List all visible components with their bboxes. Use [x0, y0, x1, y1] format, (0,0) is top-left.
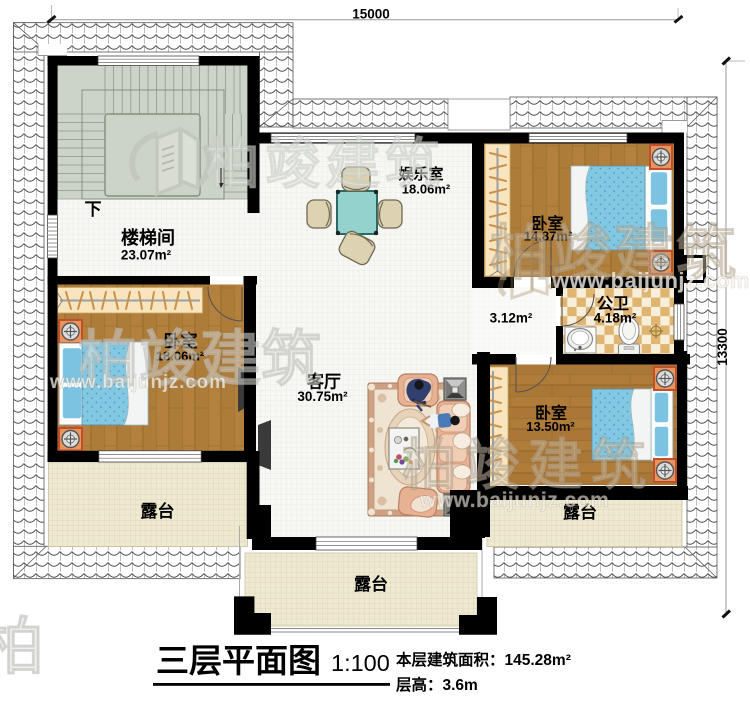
svg-text:www.baijunjz.com: www.baijunjz.com [551, 268, 750, 293]
svg-text:柏竣建筑: 柏竣建筑 [402, 434, 654, 496]
svg-text:三层平面图: 三层平面图 [156, 642, 321, 679]
svg-text:www.baijunjz.com: www.baijunjz.com [49, 372, 227, 393]
svg-text:23.07m²: 23.07m² [121, 248, 172, 263]
svg-text:www.baijunjz.com: www.baijunjz.com [419, 489, 609, 512]
svg-text:柏: 柏 [0, 613, 44, 682]
svg-text:露台: 露台 [354, 574, 388, 594]
svg-text:15000: 15000 [352, 7, 390, 22]
svg-text:柏竣建筑: 柏竣建筑 [205, 133, 445, 195]
svg-text:3.12m²: 3.12m² [490, 311, 533, 326]
svg-text:楼梯间: 楼梯间 [121, 227, 175, 248]
svg-text:13300: 13300 [715, 328, 730, 366]
svg-text:层高：3.6m: 层高：3.6m [396, 675, 478, 694]
svg-text:13.50m²: 13.50m² [526, 419, 575, 434]
svg-text:4.18m²: 4.18m² [594, 311, 637, 326]
svg-text:下: 下 [85, 200, 102, 219]
svg-text:1:100: 1:100 [331, 650, 390, 676]
svg-text:露台: 露台 [141, 501, 175, 521]
svg-text:本层建筑面积：145.28m²: 本层建筑面积：145.28m² [396, 650, 571, 669]
